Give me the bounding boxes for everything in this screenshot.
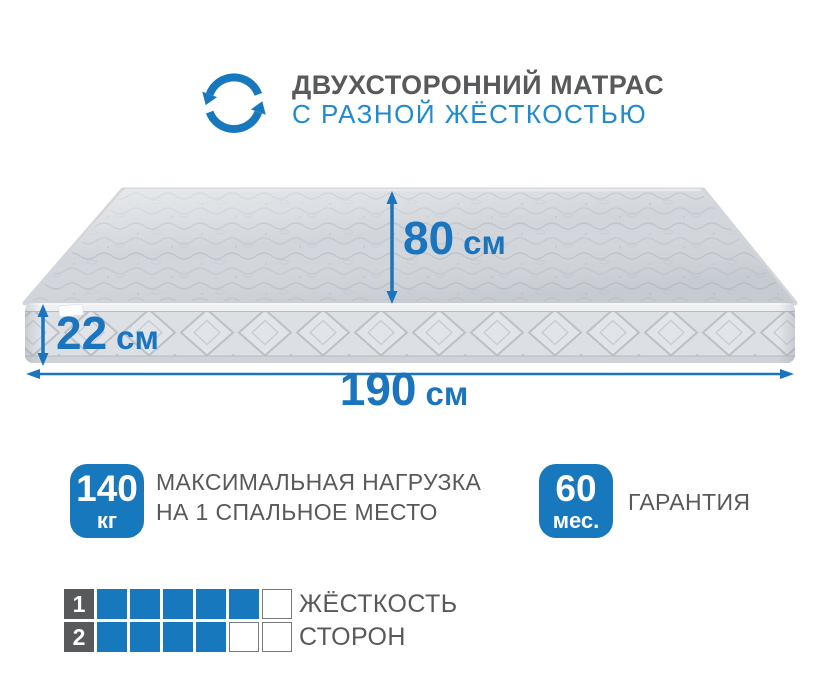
max-load-unit: кг (97, 510, 117, 532)
width-label: 190см (304, 366, 504, 412)
warranty-badge: 60 мес. (539, 464, 613, 538)
firmness-cell-empty (262, 622, 292, 652)
warranty-description: ГАРАНТИЯ (628, 487, 750, 517)
firmness-cell-filled (130, 589, 160, 619)
firmness-cell-filled (196, 622, 226, 652)
page-subtitle: С РАЗНОЙ ЖЁСТКОСТЬЮ (292, 99, 647, 130)
warranty-value: 60 (555, 470, 596, 507)
side-number: 2 (64, 622, 94, 652)
firmness-cell-filled (97, 589, 127, 619)
height-label: 22см (56, 310, 159, 356)
firmness-cell-empty (229, 622, 259, 652)
firmness-cell-empty (262, 589, 292, 619)
firmness-cell-filled (130, 622, 160, 652)
page-title: ДВУХСТОРОННИЙ МАТРАС (292, 70, 664, 101)
firmness-grid: 12 (64, 589, 292, 655)
infographic-page: ДВУХСТОРОННИЙ МАТРАС С РАЗНОЙ ЖЁСТКОСТЬЮ (0, 0, 816, 700)
bed-length-label: 80см (403, 215, 506, 261)
firmness-cell-filled (163, 622, 193, 652)
firmness-cell-filled (229, 589, 259, 619)
flip-rotate-icon (198, 64, 270, 141)
firmness-cell-filled (196, 589, 226, 619)
sides-label: СТОРОН (299, 622, 406, 652)
firmness-cell-filled (163, 589, 193, 619)
side-number: 1 (64, 589, 94, 619)
max-load-value: 140 (76, 470, 138, 507)
firmness-cell-filled (97, 622, 127, 652)
firmness-label: ЖЁСТКОСТЬ (299, 589, 458, 619)
firmness-row: 2 (64, 622, 292, 652)
warranty-unit: мес. (553, 510, 600, 532)
max-load-description: МАКСИМАЛЬНАЯ НАГРУЗКА НА 1 СПАЛЬНОЕ МЕСТ… (156, 467, 481, 527)
max-load-badge: 140 кг (70, 464, 144, 538)
firmness-row: 1 (64, 589, 292, 619)
